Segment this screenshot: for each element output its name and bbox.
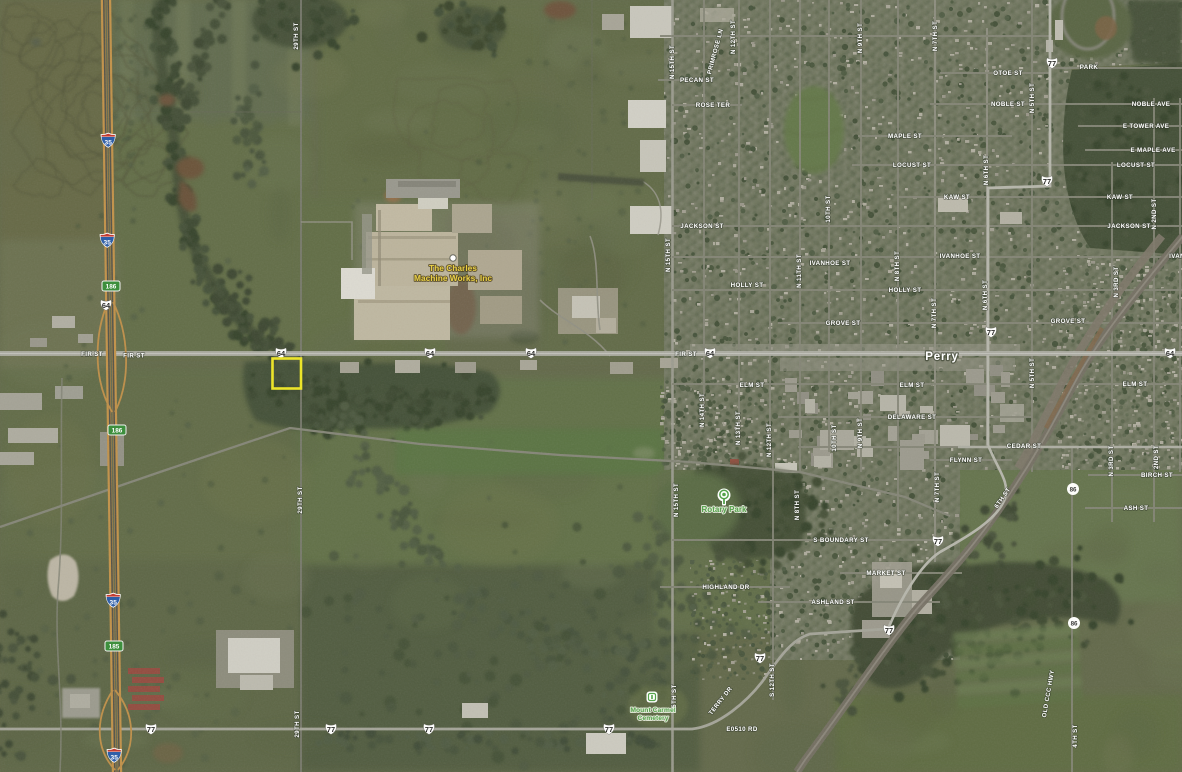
svg-text:77: 77 bbox=[147, 725, 155, 734]
svg-text:77: 77 bbox=[1043, 177, 1051, 186]
svg-text:HIGHLAND DR: HIGHLAND DR bbox=[702, 584, 749, 591]
svg-text:186: 186 bbox=[112, 428, 123, 435]
svg-text:IVANHOE ST: IVANHOE ST bbox=[940, 253, 981, 260]
svg-text:77: 77 bbox=[327, 725, 335, 734]
svg-text:IVANHOE ST: IVANHOE ST bbox=[810, 260, 851, 267]
svg-text:N 5TH ST: N 5TH ST bbox=[1029, 83, 1036, 113]
svg-text:KAW ST: KAW ST bbox=[1107, 194, 1133, 201]
svg-text:ELM ST: ELM ST bbox=[1123, 381, 1148, 388]
svg-text:N 8TH ST: N 8TH ST bbox=[894, 251, 901, 281]
svg-text:N 6TH ST: N 6TH ST bbox=[983, 155, 990, 185]
svg-text:77: 77 bbox=[425, 725, 433, 734]
svg-text:Perry: Perry bbox=[925, 351, 958, 363]
svg-text:E0510 RD: E0510 RD bbox=[726, 726, 758, 733]
svg-text:MAPLE ST: MAPLE ST bbox=[888, 133, 922, 140]
svg-text:Rotary Park: Rotary Park bbox=[702, 505, 747, 514]
svg-text:64: 64 bbox=[102, 301, 111, 310]
svg-text:N 3RD ST: N 3RD ST bbox=[1113, 267, 1120, 298]
svg-text:ROSE TER: ROSE TER bbox=[696, 102, 731, 109]
svg-text:ASHLAND ST: ASHLAND ST bbox=[811, 599, 854, 606]
svg-text:N 9TH ST: N 9TH ST bbox=[857, 23, 864, 53]
svg-text:N 12TH ST: N 12TH ST bbox=[766, 423, 773, 457]
svg-text:ELM ST: ELM ST bbox=[740, 382, 765, 389]
svg-text:LOCUST ST: LOCUST ST bbox=[893, 162, 931, 169]
svg-text:10TH ST: 10TH ST bbox=[831, 424, 838, 451]
svg-text:IVAN: IVAN bbox=[1169, 253, 1182, 260]
svg-text:OTOE ST: OTOE ST bbox=[993, 70, 1023, 77]
svg-text:77: 77 bbox=[605, 725, 613, 734]
svg-text:N 3RD ST: N 3RD ST bbox=[1108, 446, 1115, 477]
svg-text:N 6TH ST: N 6TH ST bbox=[982, 280, 989, 310]
svg-text:PARK: PARK bbox=[1080, 64, 1099, 71]
svg-text:N 7TH ST: N 7TH ST bbox=[932, 21, 939, 51]
svg-text:MARKET ST: MARKET ST bbox=[866, 570, 905, 577]
svg-text:BIRCH ST: BIRCH ST bbox=[1141, 472, 1173, 479]
svg-text:JACKSON ST: JACKSON ST bbox=[680, 223, 723, 230]
svg-text:77: 77 bbox=[756, 654, 764, 663]
svg-text:N 15TH ST: N 15TH ST bbox=[665, 238, 672, 272]
svg-text:HOLLY ST: HOLLY ST bbox=[731, 282, 764, 289]
svg-text:HOLLY ST: HOLLY ST bbox=[889, 287, 922, 294]
svg-text:64: 64 bbox=[1166, 349, 1175, 358]
svg-text:NOBLE ST: NOBLE ST bbox=[991, 101, 1025, 108]
svg-text:N 15TH ST: N 15TH ST bbox=[669, 45, 676, 79]
svg-text:64: 64 bbox=[277, 349, 286, 358]
svg-text:CEDAR ST: CEDAR ST bbox=[1007, 443, 1041, 450]
svg-text:N 2ND ST: N 2ND ST bbox=[1151, 199, 1158, 230]
svg-text:185: 185 bbox=[109, 644, 120, 651]
svg-text:Machine Works, Inc: Machine Works, Inc bbox=[414, 273, 492, 283]
svg-text:N 15TH ST: N 15TH ST bbox=[673, 483, 680, 517]
svg-text:NOBLE AVE: NOBLE AVE bbox=[1132, 101, 1171, 108]
svg-text:N 11TH ST: N 11TH ST bbox=[796, 254, 803, 288]
svg-text:64: 64 bbox=[426, 349, 435, 358]
svg-text:FLYNN ST: FLYNN ST bbox=[950, 457, 982, 464]
svg-text:64: 64 bbox=[527, 349, 536, 358]
svg-text:DELAWARE ST: DELAWARE ST bbox=[888, 414, 937, 421]
svg-text:N 5TH ST: N 5TH ST bbox=[1029, 358, 1036, 388]
svg-text:86: 86 bbox=[1071, 620, 1078, 627]
svg-text:64: 64 bbox=[706, 349, 715, 358]
svg-text:4TH ST: 4TH ST bbox=[1072, 724, 1079, 747]
svg-text:N 12TH ST: N 12TH ST bbox=[730, 20, 737, 54]
svg-text:ASH ST: ASH ST bbox=[1124, 505, 1149, 512]
svg-text:77: 77 bbox=[987, 328, 995, 337]
svg-text:29TH ST: 29TH ST bbox=[293, 22, 300, 49]
svg-text:E TOWER AVE: E TOWER AVE bbox=[1123, 123, 1169, 130]
svg-text:Mount Carmel: Mount Carmel bbox=[630, 707, 675, 714]
svg-text:2ND ST: 2ND ST bbox=[1153, 445, 1160, 469]
svg-text:186: 186 bbox=[106, 284, 117, 291]
svg-text:77: 77 bbox=[934, 537, 942, 546]
svg-text:N 13TH ST: N 13TH ST bbox=[735, 411, 742, 445]
svg-text:FIR ST: FIR ST bbox=[123, 353, 145, 360]
svg-text:29TH ST: 29TH ST bbox=[297, 486, 304, 513]
svg-text:ELM ST: ELM ST bbox=[900, 382, 925, 389]
svg-text:S 12TH ST: S 12TH ST bbox=[769, 663, 776, 697]
svg-text:77: 77 bbox=[1048, 59, 1056, 68]
svg-text:Cemetery: Cemetery bbox=[638, 715, 669, 722]
svg-text:GROVE ST: GROVE ST bbox=[826, 320, 861, 327]
svg-text:29TH ST: 29TH ST bbox=[294, 710, 301, 737]
svg-text:JACKSON ST: JACKSON ST bbox=[1107, 223, 1150, 230]
svg-text:N 14TH ST: N 14TH ST bbox=[699, 393, 706, 427]
svg-text:LOCUST ST: LOCUST ST bbox=[1117, 162, 1155, 169]
svg-text:FIR ST: FIR ST bbox=[81, 351, 103, 358]
svg-text:N 8TH ST: N 8TH ST bbox=[794, 490, 801, 520]
svg-text:N 7TH ST: N 7TH ST bbox=[934, 472, 941, 502]
svg-text:E MAPLE AVE: E MAPLE AVE bbox=[1130, 147, 1175, 154]
svg-text:FIR ST: FIR ST bbox=[675, 351, 697, 358]
svg-text:GROVE ST: GROVE ST bbox=[1051, 318, 1086, 325]
svg-text:PECAN ST: PECAN ST bbox=[680, 77, 714, 84]
svg-text:The Charles: The Charles bbox=[429, 263, 477, 273]
svg-text:S BOUNDARY ST: S BOUNDARY ST bbox=[813, 537, 868, 544]
svg-text:KAW ST: KAW ST bbox=[944, 194, 970, 201]
svg-text:10TH ST: 10TH ST bbox=[825, 195, 832, 222]
svg-text:N 7TH ST: N 7TH ST bbox=[931, 298, 938, 328]
svg-text:86: 86 bbox=[1070, 486, 1077, 493]
svg-text:N 9TH ST: N 9TH ST bbox=[857, 418, 864, 448]
svg-text:77: 77 bbox=[885, 626, 893, 635]
